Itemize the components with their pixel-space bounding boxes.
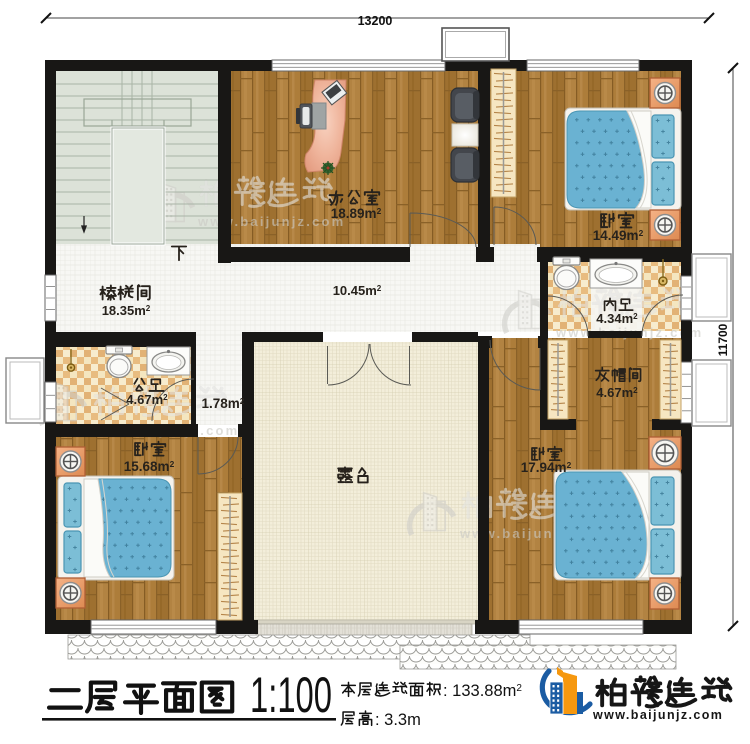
svg-text:1:100: 1:100: [250, 667, 332, 723]
svg-text:4.67m2: 4.67m2: [596, 385, 638, 400]
svg-text:18.35m2: 18.35m2: [102, 303, 151, 318]
svg-text:13200: 13200: [358, 14, 393, 28]
svg-text:11700: 11700: [716, 323, 730, 356]
svg-text:10.45m2: 10.45m2: [333, 283, 382, 298]
svg-text:www.baijunjz.com: www.baijunjz.com: [592, 708, 723, 722]
svg-text:: 3.3m: : 3.3m: [375, 711, 421, 729]
svg-text:18.89m2: 18.89m2: [331, 206, 382, 221]
svg-text:17.94m2: 17.94m2: [521, 460, 572, 475]
svg-text:: 133.88m2: : 133.88m2: [443, 682, 522, 700]
svg-text:4.67m2: 4.67m2: [126, 392, 168, 407]
svg-text:4.34m2: 4.34m2: [596, 311, 638, 326]
svg-text:1.78m2: 1.78m2: [202, 396, 245, 411]
svg-text:15.68m2: 15.68m2: [124, 459, 175, 474]
svg-text:14.49m2: 14.49m2: [593, 228, 644, 243]
